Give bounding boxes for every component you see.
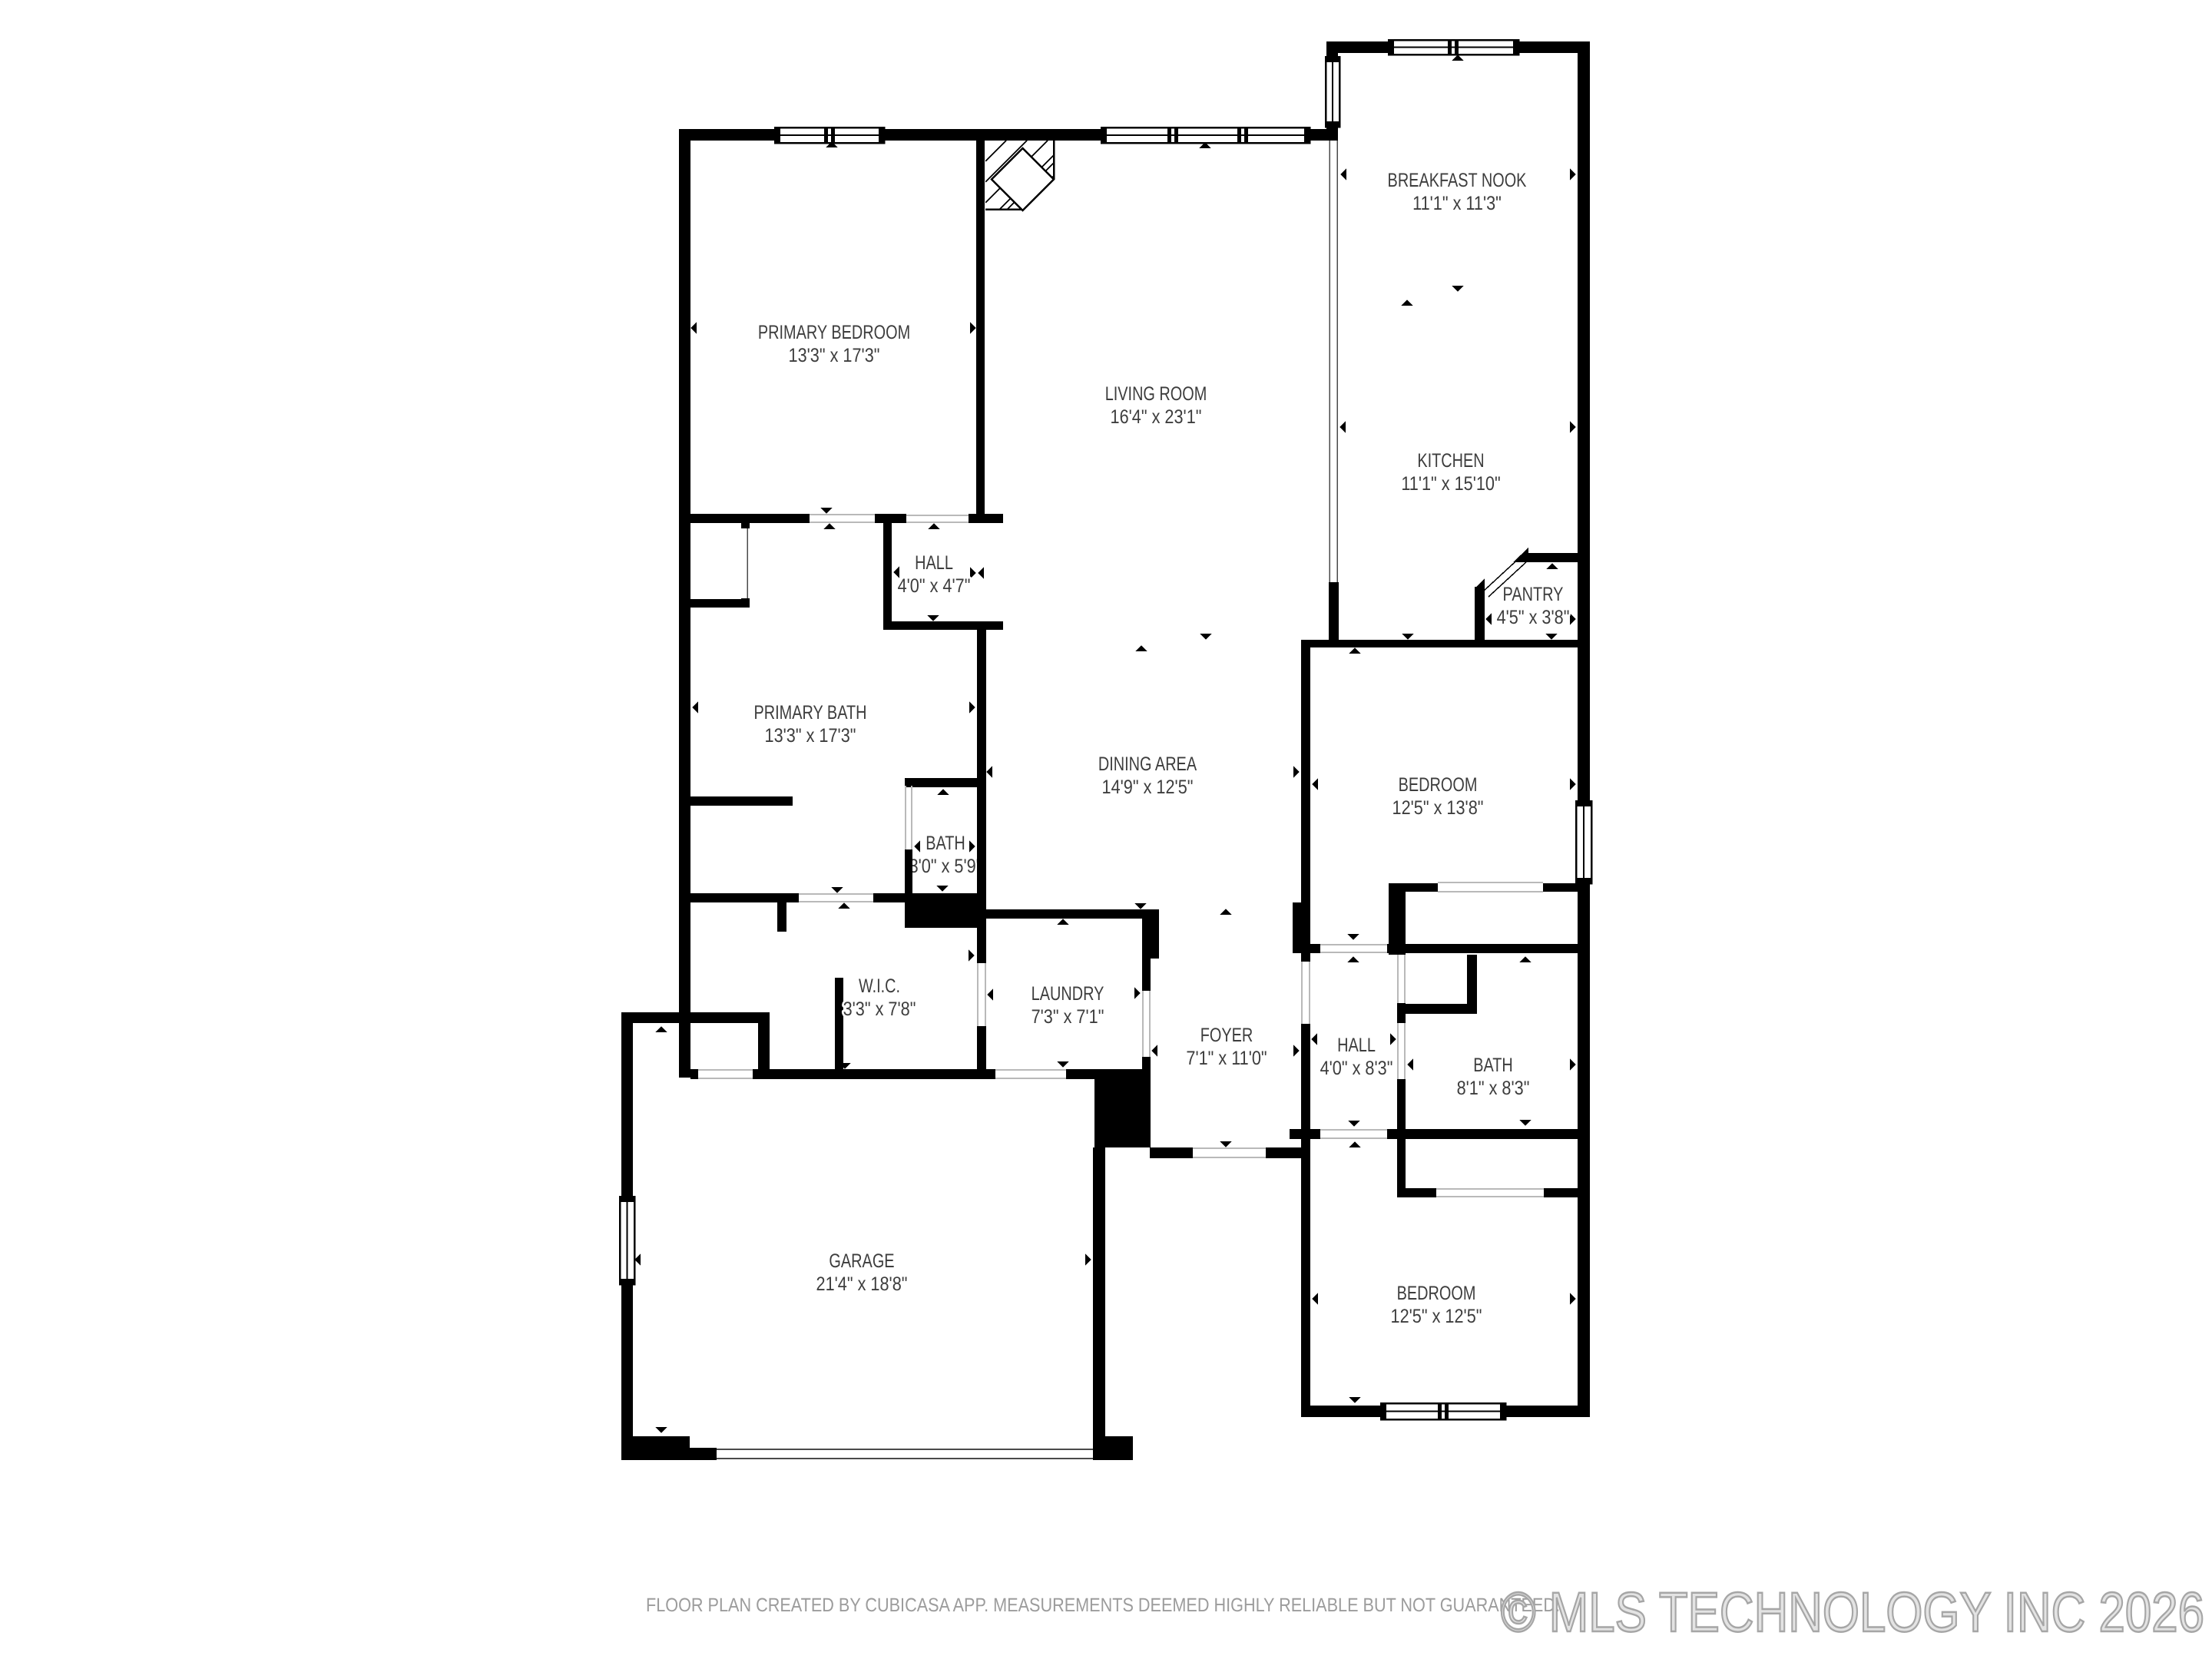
svg-text:PANTRY: PANTRY — [1503, 584, 1564, 605]
svg-text:DINING AREA: DINING AREA — [1098, 753, 1197, 775]
svg-text:BEDROOM: BEDROOM — [1397, 1283, 1476, 1304]
svg-text:LAUNDRY: LAUNDRY — [1031, 983, 1104, 1005]
svg-text:HALL: HALL — [915, 552, 953, 574]
svg-text:16'4" x 23'1": 16'4" x 23'1" — [1111, 406, 1202, 428]
svg-text:4'0" x 8'3": 4'0" x 8'3" — [1320, 1058, 1393, 1079]
svg-text:W.I.C.: W.I.C. — [859, 975, 900, 997]
svg-text:BATH: BATH — [926, 833, 965, 854]
svg-text:HALL: HALL — [1337, 1035, 1376, 1056]
svg-text:11'1" x 15'10": 11'1" x 15'10" — [1401, 473, 1500, 495]
svg-text:BATH: BATH — [1473, 1055, 1513, 1076]
svg-text:4'0" x 4'7": 4'0" x 4'7" — [898, 575, 971, 597]
svg-text:FLOOR PLAN CREATED BY CUBICASA: FLOOR PLAN CREATED BY CUBICASA APP. MEAS… — [646, 1594, 1560, 1616]
svg-text:BREAKFAST NOOK: BREAKFAST NOOK — [1388, 170, 1527, 191]
svg-text:3'0" x 5'9": 3'0" x 5'9" — [909, 856, 982, 877]
svg-text:GARAGE: GARAGE — [829, 1250, 894, 1272]
svg-text:14'9" x 12'5": 14'9" x 12'5" — [1102, 777, 1194, 798]
svg-text:PRIMARY BEDROOM: PRIMARY BEDROOM — [758, 322, 910, 343]
svg-text:4'5" x 3'8": 4'5" x 3'8" — [1497, 607, 1570, 628]
svg-text:13'3" x 17'3": 13'3" x 17'3" — [765, 725, 856, 747]
svg-text:© MLS TECHNOLOGY INC 2026: © MLS TECHNOLOGY INC 2026 — [1501, 1581, 2204, 1644]
svg-text:11'1" x 11'3": 11'1" x 11'3" — [1412, 193, 1502, 214]
svg-text:KITCHEN: KITCHEN — [1417, 450, 1484, 472]
svg-text:12'5" x 13'8": 12'5" x 13'8" — [1392, 797, 1484, 819]
svg-text:7'1" x 11'0": 7'1" x 11'0" — [1186, 1048, 1267, 1069]
svg-text:7'3" x 7'1": 7'3" x 7'1" — [1031, 1006, 1104, 1028]
svg-text:8'1" x 8'3": 8'1" x 8'3" — [1457, 1078, 1530, 1099]
svg-text:3'3" x 7'8": 3'3" x 7'8" — [843, 998, 916, 1020]
svg-text:FOYER: FOYER — [1200, 1025, 1253, 1046]
svg-text:12'5" x 12'5": 12'5" x 12'5" — [1391, 1306, 1482, 1327]
svg-text:PRIMARY BATH: PRIMARY BATH — [754, 702, 867, 724]
svg-text:BEDROOM: BEDROOM — [1399, 774, 1478, 796]
svg-text:21'4" x 18'8": 21'4" x 18'8" — [816, 1273, 908, 1295]
svg-text:LIVING ROOM: LIVING ROOM — [1105, 383, 1207, 405]
svg-text:13'3" x 17'3": 13'3" x 17'3" — [789, 345, 880, 366]
